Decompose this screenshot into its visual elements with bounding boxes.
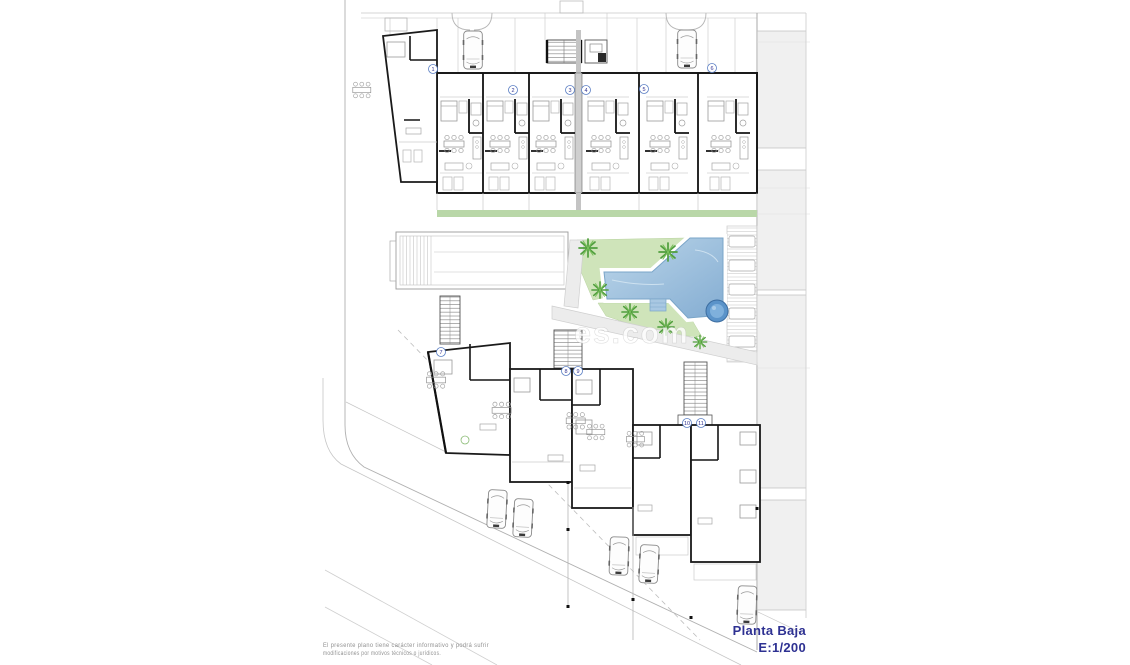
central-corridor [575, 30, 582, 217]
bottom-building-block [427, 330, 760, 640]
unit-number-badge: 11 [697, 419, 706, 428]
car-icon [608, 537, 630, 576]
unit-number: 9 [576, 369, 579, 375]
unit-number: 4 [584, 88, 587, 94]
rear-garden-fences [437, 193, 757, 210]
car-icon [736, 586, 758, 625]
driveway-splays [452, 13, 706, 30]
car-icon [512, 498, 535, 537]
circular-spa [706, 300, 728, 322]
angled-end-unit [353, 18, 437, 182]
utility-room [585, 40, 607, 63]
floor-plan-page: 1 2 3 4 5 6 7 8 [0, 0, 1130, 665]
disclaimer-line-1: El presente plano tiene carácter informa… [323, 643, 489, 649]
palm-tree-icon [592, 282, 608, 298]
car-icon [486, 489, 509, 528]
unit-number: 5 [642, 87, 645, 93]
unit-number-badge: 9 [574, 367, 583, 376]
staircase [440, 296, 460, 344]
unit-number-badge: 1 [429, 65, 438, 74]
staircase [547, 40, 581, 63]
unit-number: 3 [568, 88, 571, 94]
unit-number-badge: 4 [582, 86, 591, 95]
car-icon [463, 31, 484, 69]
unit-number-badge: 10 [683, 419, 692, 428]
disclaimer-note: El presente plano tiene carácter informa… [323, 643, 489, 657]
parking-strip [727, 226, 757, 362]
unit-number: 11 [698, 421, 704, 427]
palm-tree-icon [659, 243, 677, 261]
unit-number: 1 [431, 67, 434, 73]
watermark: es.com [574, 317, 689, 350]
plan-scale: E:1/200 [758, 640, 806, 655]
unit-number-badge: 3 [566, 86, 575, 95]
unit-9 [566, 369, 633, 508]
meter-cabinet [560, 1, 583, 13]
palm-tree-icon [579, 239, 597, 257]
neighbor-parcel-band [757, 13, 810, 634]
palm-tree-icon [693, 335, 707, 349]
unit-number: 2 [511, 88, 514, 94]
car-icon [638, 544, 661, 583]
unit-number: 7 [439, 350, 442, 356]
unit-number-badge: 7 [437, 348, 446, 357]
car-icon [677, 30, 698, 68]
staircase [684, 362, 707, 416]
title-block: Planta Baja E:1/200 [733, 623, 807, 655]
unit-number: 10 [684, 421, 690, 427]
plan-title: Planta Baja [733, 623, 807, 638]
pergola-structure [390, 232, 568, 289]
top-building-block [353, 1, 757, 217]
unit-number: 6 [710, 66, 713, 72]
unit-7 [427, 343, 510, 455]
pool-steps [650, 299, 666, 311]
unit-number-badge: 5 [640, 85, 649, 94]
site-plan: 1 2 3 4 5 6 7 8 [0, 0, 1130, 665]
disclaimer-line-2: modificaciones por motivos técnicos o ju… [323, 651, 441, 657]
unit-number-badge: 6 [708, 64, 717, 73]
unit-number-badge: 2 [509, 86, 518, 95]
unit-number-badge: 8 [562, 367, 571, 376]
hedge-strip [437, 210, 757, 217]
unit-number: 8 [564, 369, 567, 375]
